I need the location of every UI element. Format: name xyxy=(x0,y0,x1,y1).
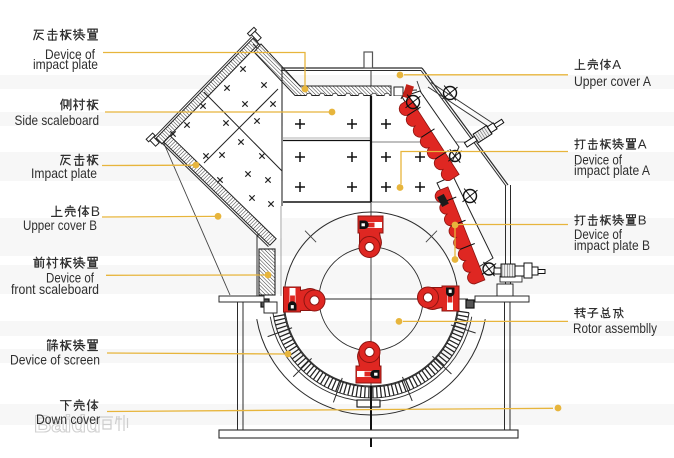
svg-text:Down cover: Down cover xyxy=(36,411,100,427)
svg-text:impact plate B: impact plate B xyxy=(574,237,650,253)
svg-text:Upper cover A: Upper cover A xyxy=(574,73,652,89)
svg-text:Side scaleboard: Side scaleboard xyxy=(15,112,100,128)
svg-text:impact plate: impact plate xyxy=(33,56,98,72)
svg-text:Rotor assemblly: Rotor assemblly xyxy=(573,320,657,336)
svg-text:Upper cover B: Upper cover B xyxy=(23,217,97,233)
svg-text:front scaleboard: front scaleboard xyxy=(11,281,99,297)
svg-text:impact plate A: impact plate A xyxy=(574,162,651,178)
svg-text:B: B xyxy=(638,213,647,228)
svg-text:A: A xyxy=(638,137,647,152)
svg-text:A: A xyxy=(612,57,621,72)
svg-text:Device of screen: Device of screen xyxy=(10,352,100,368)
svg-text:Impact plate: Impact plate xyxy=(31,165,97,181)
